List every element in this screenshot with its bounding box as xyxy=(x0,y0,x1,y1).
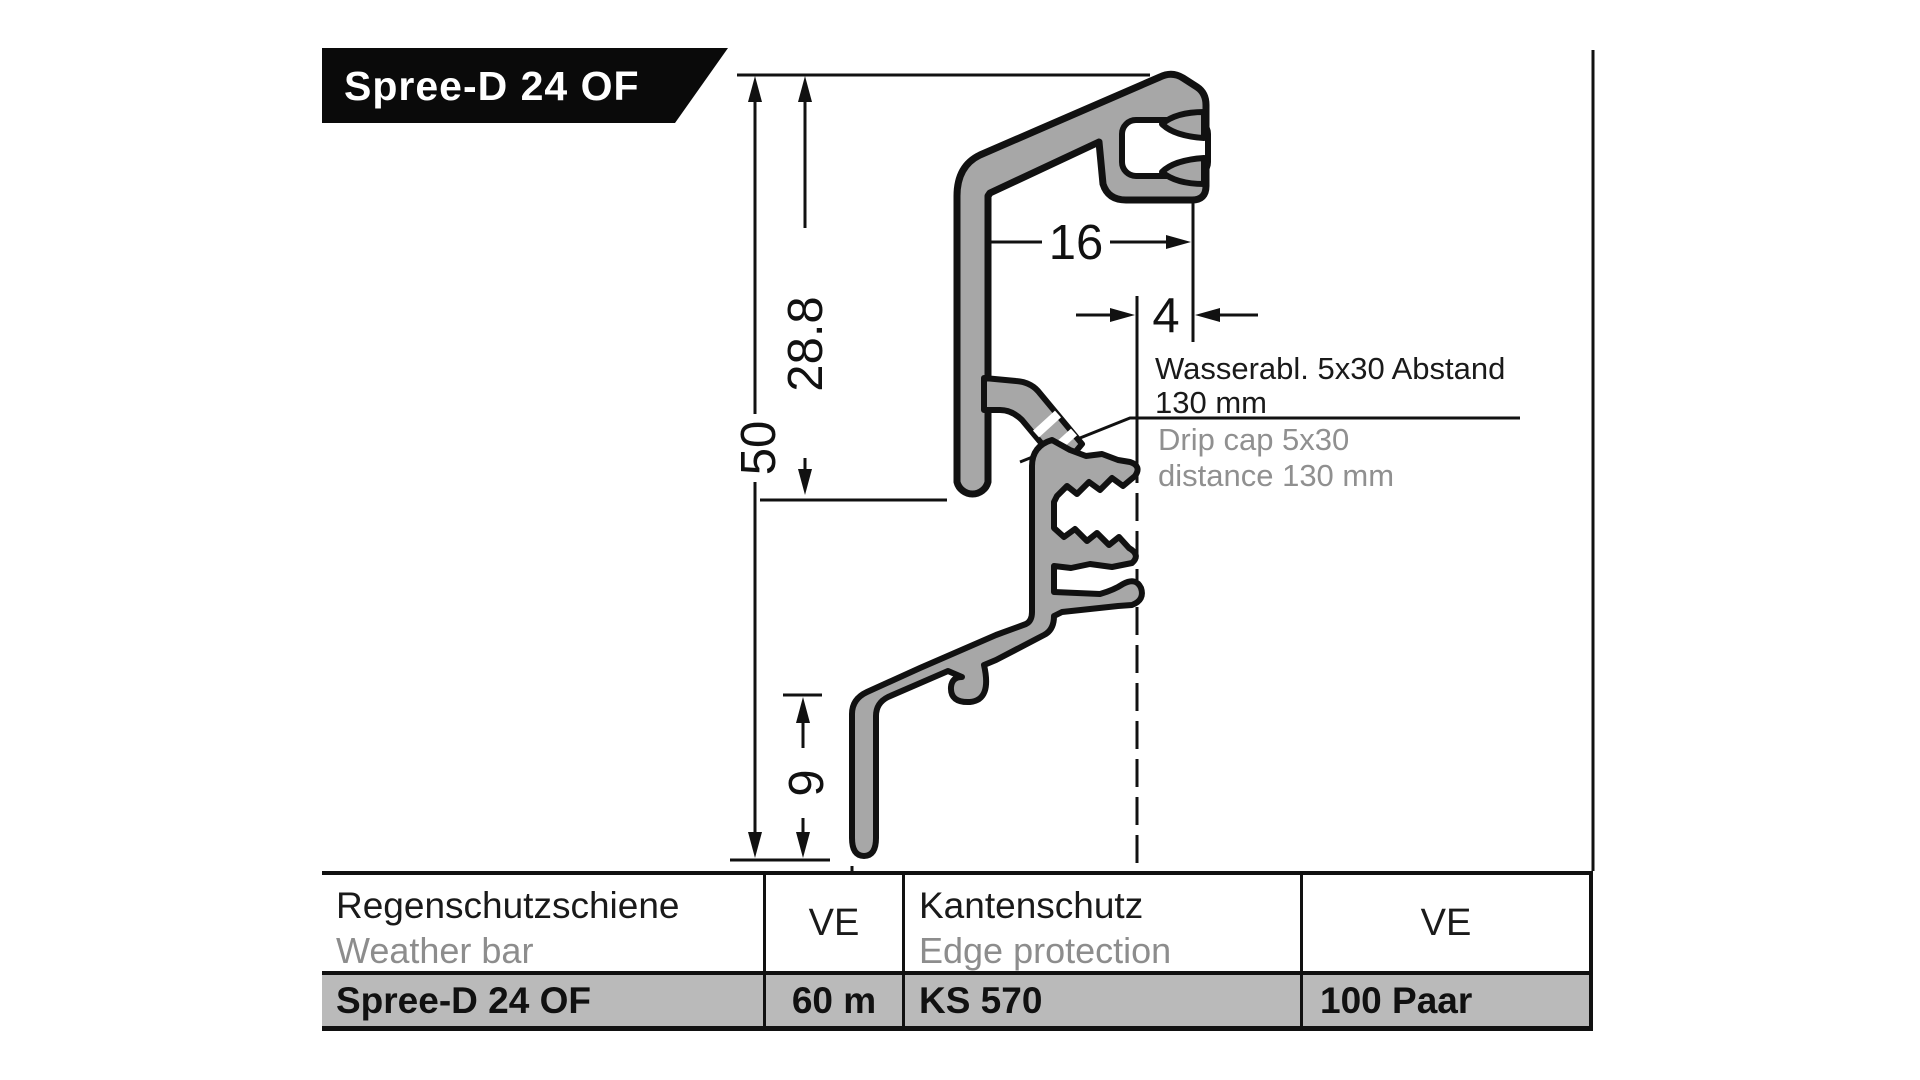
note-en-line2: distance 130 mm xyxy=(1158,458,1394,493)
banner-title: Spree-D 24 OF xyxy=(344,63,640,109)
arrow-4-right xyxy=(1195,308,1220,322)
title-banner: Spree-D 24 OF xyxy=(322,48,728,123)
dim-label-28-8: 28.8 xyxy=(779,296,833,391)
catalog-page: Spree-D 24 OF xyxy=(0,0,1920,1080)
arrow-50-down xyxy=(748,832,762,858)
dim-label-9: 9 xyxy=(780,769,834,796)
row-ve-1: 60 m xyxy=(766,975,905,1026)
profile-lower-body xyxy=(852,440,1142,856)
note-en-line1: Drip cap 5x30 xyxy=(1158,422,1349,457)
arrow-288-up xyxy=(798,76,812,102)
arrow-4-left xyxy=(1110,308,1135,322)
arrow-9-down xyxy=(796,832,810,858)
header-ve-1: VE xyxy=(766,875,905,975)
arrow-16-right xyxy=(1166,235,1191,249)
annotation: Wasserabl. 5x30 Abstand 130 mm Drip cap … xyxy=(1155,351,1505,493)
note-de-line1: Wasserabl. 5x30 Abstand xyxy=(1155,351,1505,386)
profile-cross-section xyxy=(852,74,1208,856)
arrow-288-down xyxy=(798,469,812,495)
product-table: Regenschutzschiene Weather bar VE Kanten… xyxy=(322,871,1593,1031)
row-edge-product: KS 570 xyxy=(905,975,1303,1026)
header-weather-bar-en: Weather bar xyxy=(336,929,763,973)
arrow-50-up xyxy=(748,76,762,102)
dim-label-4: 4 xyxy=(1152,289,1179,343)
header-weather-bar: Regenschutzschiene Weather bar xyxy=(322,875,766,975)
row-product-name: Spree-D 24 OF xyxy=(322,975,766,1026)
dim-label-50: 50 xyxy=(732,421,786,476)
note-de-line2: 130 mm xyxy=(1155,385,1267,420)
row-ve-2: 100 Paar xyxy=(1303,975,1593,1026)
dim-label-16: 16 xyxy=(1049,216,1104,270)
header-edge-protection: Kantenschutz Edge protection xyxy=(905,875,1303,975)
header-edge-protection-en: Edge protection xyxy=(919,929,1300,973)
header-edge-protection-de: Kantenschutz xyxy=(919,883,1300,929)
arrow-9-up xyxy=(796,697,810,723)
header-weather-bar-de: Regenschutzschiene xyxy=(336,883,763,929)
header-ve-2: VE xyxy=(1303,875,1593,975)
